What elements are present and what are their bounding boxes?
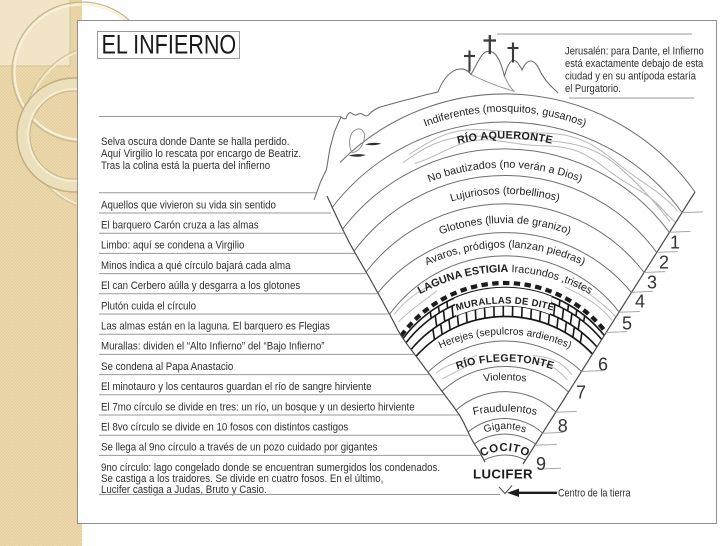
svg-text:ciudad y en su antípoda estarí: ciudad y en su antípoda estaría: [565, 71, 696, 83]
svg-text:El minotauro y los centauros g: El minotauro y los centauros guardan el …: [101, 382, 372, 394]
svg-text:El 8vo círculo se divide en 10: El 8vo círculo se divide en 10 fosos con…: [101, 422, 348, 434]
svg-text:9no círculo: lago congelado do: 9no círculo: lago congelado donde se enc…: [101, 463, 440, 475]
svg-text:está exactamente debajo de est: está exactamente debajo de esta: [565, 58, 704, 70]
svg-text:Tras la colina está la puerta: Tras la colina está la puerta del infier…: [101, 160, 270, 172]
svg-text:Aquí Virgilio lo rescata por e: Aquí Virgilio lo rescata por encargo de …: [101, 148, 301, 160]
svg-text:2: 2: [659, 252, 669, 272]
svg-text:3: 3: [647, 272, 657, 292]
svg-text:Violentos: Violentos: [483, 372, 528, 385]
svg-text:1: 1: [670, 232, 680, 252]
svg-text:Se castiga a los traidores. Se: Se castiga a los traidores. Se divide en…: [101, 473, 383, 485]
svg-text:9: 9: [536, 454, 546, 474]
svg-text:El can Cerbero aúlla y desgarr: El can Cerbero aúlla y desgarra a los gl…: [101, 281, 300, 293]
svg-text:Jerusalén: para Dante, el Infi: Jerusalén: para Dante, el Infierno: [565, 46, 704, 58]
svg-text:7: 7: [576, 382, 586, 402]
svg-text:Aquellos que vivieron su vida: Aquellos que vivieron su vida sin sentid…: [101, 200, 276, 212]
svg-text:8: 8: [558, 416, 568, 436]
svg-text:Las almas están en la laguna.: Las almas están en la laguna. El barquer…: [101, 321, 330, 333]
svg-text:Murallas: dividen el “Alto Inf: Murallas: dividen el “Alto Infierno” del…: [101, 341, 325, 353]
svg-text:Plutón cuida el círculo: Plutón cuida el círculo: [101, 301, 196, 313]
svg-text:el Purgatorio.: el Purgatorio.: [565, 83, 621, 95]
svg-text:Se llega al 9no círculo a trav: Se llega al 9no círculo a través de un p…: [101, 442, 377, 454]
svg-text:Limbo: aquí se condena a Virgi: Limbo: aquí se condena a Virgilio: [101, 240, 245, 252]
svg-text:Selva oscura donde Dante se ha: Selva oscura donde Dante se halla perdid…: [101, 136, 289, 148]
svg-text:LUCIFER: LUCIFER: [473, 467, 533, 482]
svg-text:5: 5: [622, 313, 632, 333]
svg-text:EL INFIERNO: EL INFIERNO: [102, 30, 237, 60]
svg-text:4: 4: [635, 291, 645, 311]
svg-text:El 7mo círculo se divide en tr: El 7mo círculo se divide en tres: un río…: [101, 402, 415, 414]
svg-text:El barquero Carón cruza a las: El barquero Carón cruza a las almas: [101, 220, 259, 232]
svg-text:Minos indica a qué círculo baj: Minos indica a qué círculo bajará cada a…: [101, 260, 291, 272]
svg-text:Se condena al Papa Anastacio: Se condena al Papa Anastacio: [101, 361, 234, 373]
svg-text:6: 6: [598, 354, 608, 374]
svg-text:Centro de la tierra: Centro de la tierra: [558, 488, 631, 500]
